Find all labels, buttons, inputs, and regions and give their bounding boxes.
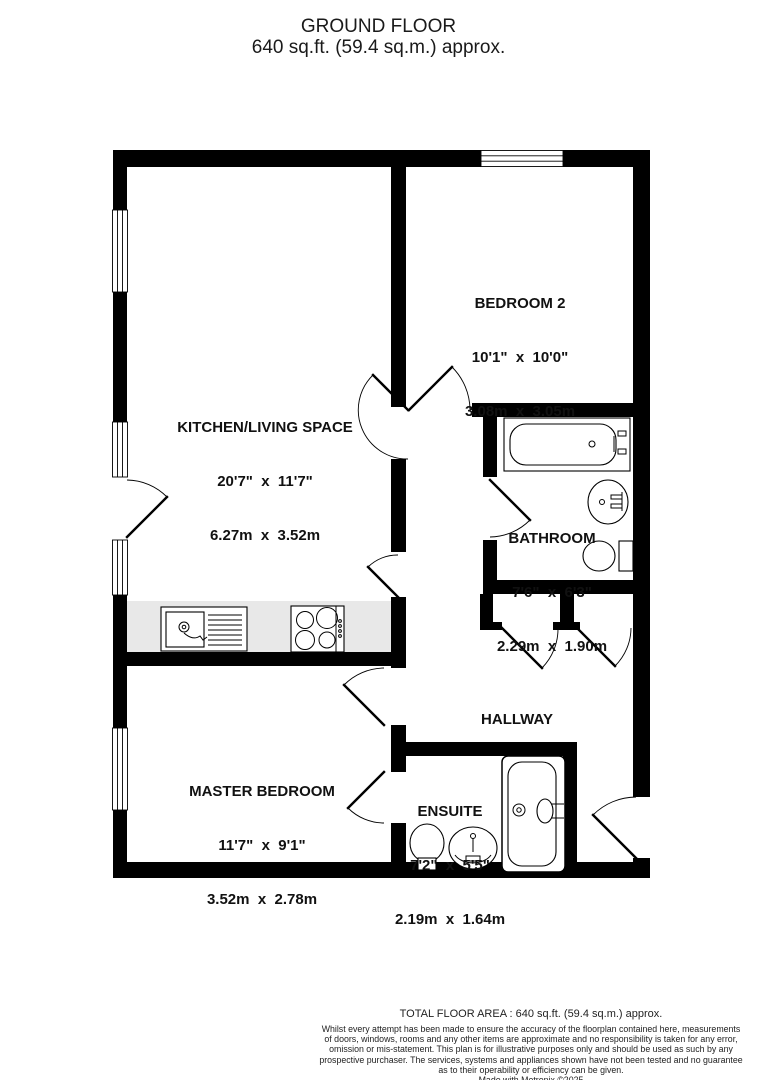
room-dims-imperial: 11'7" x 9'1"	[189, 837, 335, 855]
room-name: MASTER BEDROOM	[189, 783, 335, 801]
hob-fixture	[291, 606, 344, 652]
window-marker	[113, 540, 128, 595]
entry-door	[593, 797, 636, 858]
wall-segment	[113, 150, 127, 210]
wall-segment	[391, 167, 406, 407]
room-dims-imperial: 7'6" x 6'3"	[497, 584, 607, 602]
room-name: BEDROOM 2	[465, 295, 575, 313]
room-label-kitchen: KITCHEN/LIVING SPACE 20'7" x 11'7" 6.27m…	[177, 383, 353, 581]
wall-segment	[113, 652, 406, 666]
ensuite-door	[348, 772, 384, 823]
room-label-bedroom2: BEDROOM 2 10'1" x 10'0" 3.08m x 3.05m	[465, 259, 575, 457]
bedroom2-door	[409, 367, 470, 410]
footer-disclaimer-line: as to their operability or efficiency ca…	[311, 1065, 751, 1075]
wall-segment	[480, 594, 493, 630]
master-bedroom-door	[344, 668, 384, 725]
room-dims-imperial: 10'1" x 10'0"	[465, 349, 575, 367]
room-label-bathroom: BATHROOM 7'6" x 6'3" 2.29m x 1.90m	[497, 494, 607, 692]
room-dims-metric: 3.08m x 3.05m	[465, 403, 575, 421]
room-dims-imperial: 20'7" x 11'7"	[177, 473, 353, 491]
footer-disclaimer-line: omission or mis-statement. This plan is …	[311, 1044, 751, 1054]
shower-bath-fixture	[502, 756, 565, 872]
footer-disclaimer-line: Whilst every attempt has been made to en…	[311, 1024, 751, 1034]
footer-credit: Made with Metropix ©2025	[311, 1075, 751, 1080]
wall-segment	[391, 459, 406, 552]
footer-disclaimer-line: prospective purchaser. The services, sys…	[311, 1055, 751, 1065]
wall-segment	[113, 150, 481, 167]
wall-segment	[633, 858, 650, 878]
window-marker	[113, 422, 128, 477]
room-label-hallway: HALLWAY	[481, 675, 553, 765]
patio-door	[127, 480, 167, 537]
floorplan-svg	[0, 0, 757, 1080]
footer-disclaimer-line: of doors, windows, rooms and any other i…	[311, 1034, 751, 1044]
room-name: HALLWAY	[481, 711, 553, 729]
room-label-ensuite: ENSUITE 7'2" x 5'5" 2.19m x 1.64m	[395, 767, 505, 965]
kitchen-sink-fixture	[161, 607, 247, 651]
wall-segment	[113, 292, 127, 422]
wall-segment	[633, 150, 650, 797]
footer: TOTAL FLOOR AREA : 640 sq.ft. (59.4 sq.m…	[311, 1008, 751, 1080]
window-marker	[481, 151, 563, 167]
room-label-master: MASTER BEDROOM 11'7" x 9'1" 3.52m x 2.78…	[189, 747, 335, 945]
window-marker	[113, 728, 128, 810]
room-dims-metric: 3.52m x 2.78m	[189, 891, 335, 909]
room-dims-metric: 6.27m x 3.52m	[177, 527, 353, 545]
room-name: BATHROOM	[497, 530, 607, 548]
room-dims-metric: 2.19m x 1.64m	[395, 911, 505, 929]
room-dims-metric: 2.29m x 1.90m	[497, 638, 607, 656]
kitchen-door-lower	[368, 555, 398, 597]
floorplan-page: GROUND FLOOR 640 sq.ft. (59.4 sq.m.) app…	[0, 0, 757, 1080]
room-dims-imperial: 7'2" x 5'5"	[395, 857, 505, 875]
room-name: KITCHEN/LIVING SPACE	[177, 419, 353, 437]
room-name: ENSUITE	[395, 803, 505, 821]
window-marker	[113, 210, 128, 292]
footer-total-area: TOTAL FLOOR AREA : 640 sq.ft. (59.4 sq.m…	[311, 1008, 751, 1021]
